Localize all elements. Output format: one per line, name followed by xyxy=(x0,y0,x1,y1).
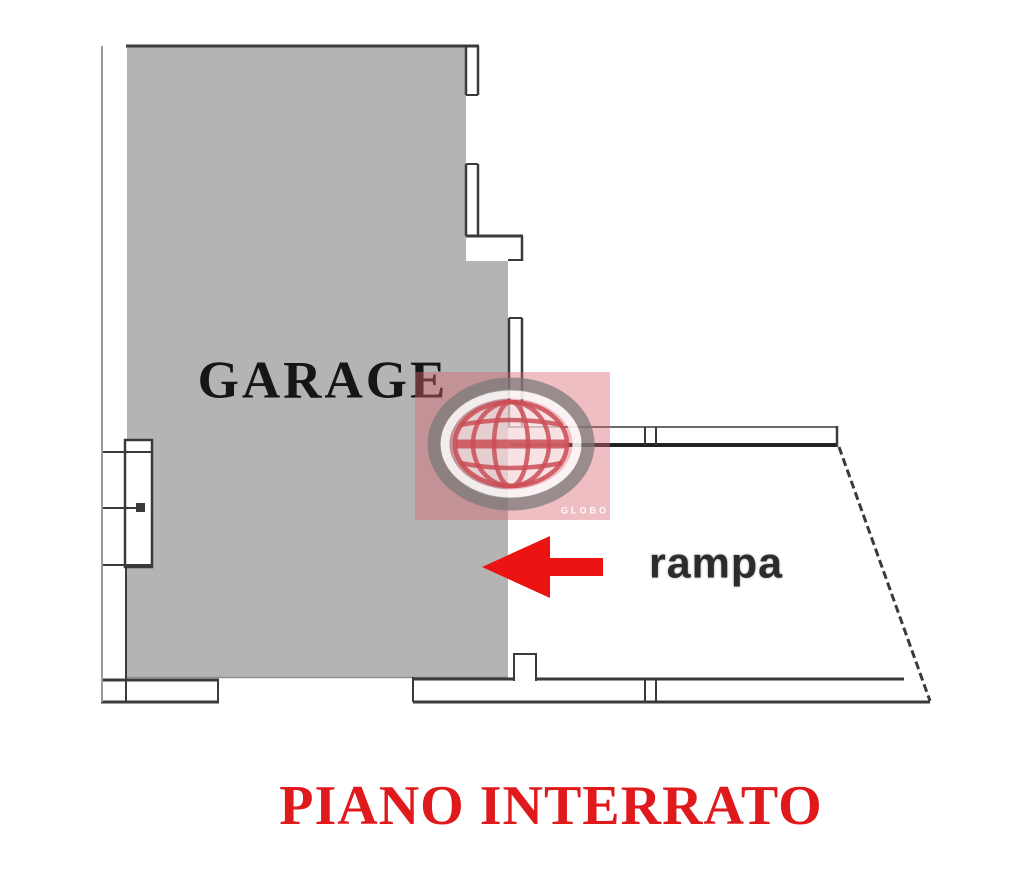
left-wall-door-detail xyxy=(103,440,152,567)
watermark-brand-text: GLOBO xyxy=(561,507,609,516)
ramp-room-label: rampa xyxy=(649,543,783,586)
floorplan-canvas: GARAGE rampa GLOBO xyxy=(0,0,1024,891)
floor-title: PIANO INTERRATO xyxy=(279,774,822,838)
globe-icon xyxy=(434,384,588,504)
floorplan-drawing xyxy=(0,0,1024,891)
overlay-layer xyxy=(0,0,1024,891)
wall-stub xyxy=(514,653,536,681)
direction-arrow-left-icon xyxy=(482,536,603,598)
ramp-diagonal-dashed-edge xyxy=(839,447,930,701)
garage-room-label: GARAGE xyxy=(198,355,449,408)
